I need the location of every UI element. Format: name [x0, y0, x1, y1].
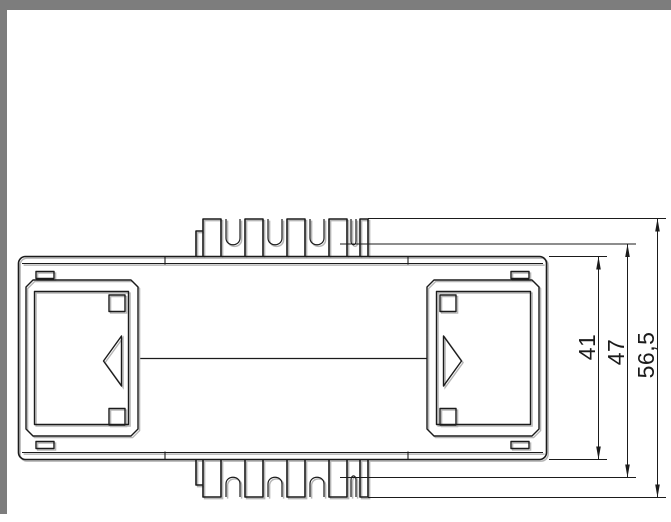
dimension-47-label: 47: [603, 339, 629, 366]
dimension-41-label: 41: [574, 334, 600, 361]
latch-left: [26, 272, 140, 451]
drawing-canvas: 41 47 56,5: [0, 0, 671, 522]
dimension-56-5-label: 56,5: [633, 332, 659, 379]
window-frame-left-bar: [0, 0, 7, 514]
latch-right: [427, 272, 541, 451]
technical-drawing-svg: 41 47 56,5: [0, 0, 671, 522]
dimension-41: 41: [549, 257, 607, 460]
window-frame-top-bar: [0, 0, 671, 10]
